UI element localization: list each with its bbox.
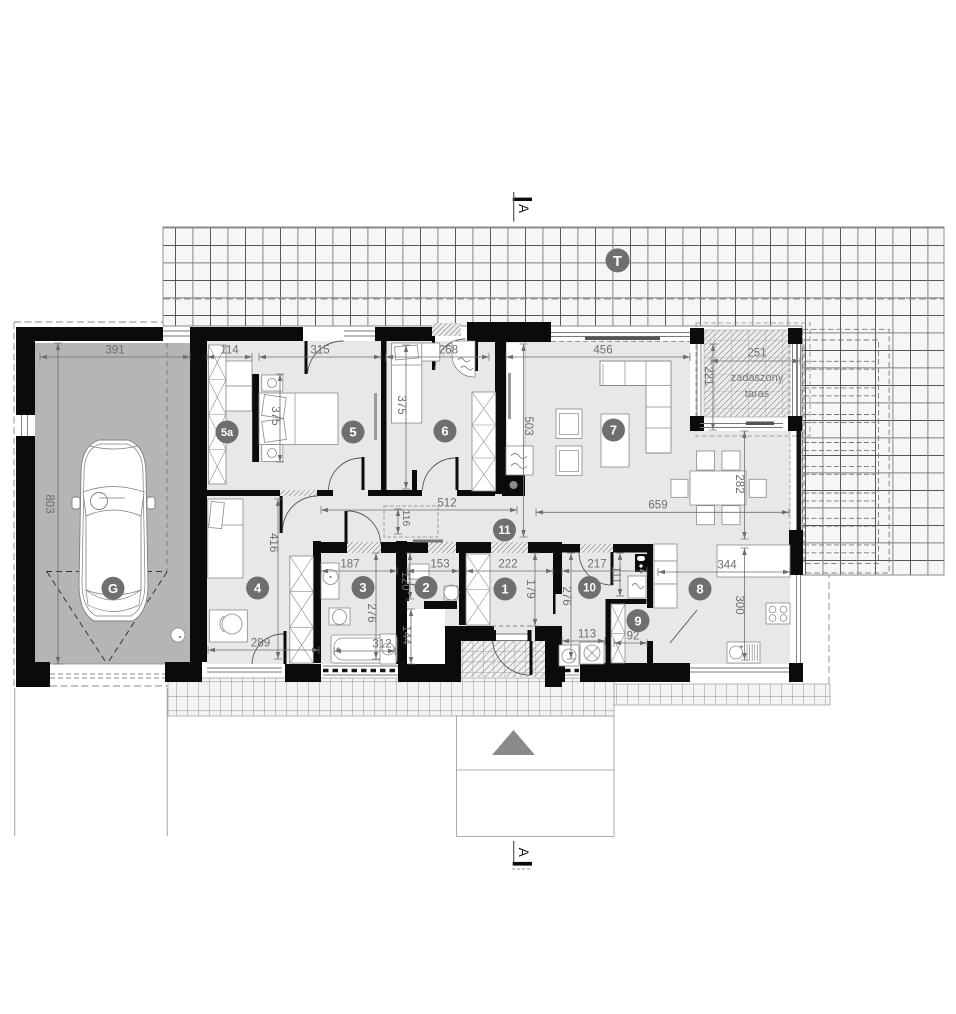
svg-text:zadaszony: zadaszony	[731, 372, 784, 384]
svg-text:9: 9	[634, 613, 641, 628]
svg-text:120: 120	[399, 571, 411, 590]
svg-text:144: 144	[400, 625, 412, 645]
svg-text:5a: 5a	[221, 427, 234, 439]
svg-text:222: 222	[498, 559, 517, 571]
svg-text:5: 5	[349, 425, 356, 440]
svg-text:512: 512	[437, 498, 456, 510]
svg-text:3: 3	[359, 580, 366, 595]
svg-text:276: 276	[365, 603, 377, 622]
svg-text:10: 10	[583, 583, 596, 595]
svg-text:391: 391	[105, 345, 124, 357]
svg-text:416: 416	[267, 533, 279, 552]
svg-text:375: 375	[269, 406, 281, 425]
svg-text:7: 7	[610, 423, 617, 438]
svg-text:6: 6	[441, 424, 448, 439]
svg-text:187: 187	[340, 559, 359, 571]
svg-text:282: 282	[733, 474, 745, 493]
svg-text:276: 276	[560, 586, 572, 605]
svg-text:456: 456	[593, 345, 612, 357]
svg-text:11: 11	[498, 525, 511, 537]
svg-text:A: A	[516, 848, 531, 857]
svg-text:503: 503	[522, 416, 534, 435]
svg-text:1: 1	[501, 582, 508, 597]
svg-text:179: 179	[524, 579, 536, 598]
svg-text:113: 113	[578, 629, 596, 641]
svg-text:312: 312	[372, 639, 391, 651]
svg-text:375: 375	[395, 395, 407, 414]
svg-text:114: 114	[220, 345, 239, 357]
svg-text:116: 116	[400, 510, 412, 527]
svg-text:803: 803	[43, 494, 55, 513]
svg-text:taras: taras	[745, 388, 770, 400]
svg-text:268: 268	[439, 345, 458, 357]
svg-text:4: 4	[254, 581, 262, 596]
svg-text:315: 315	[310, 345, 329, 357]
svg-text:251: 251	[747, 348, 766, 360]
svg-text:A: A	[516, 204, 531, 213]
svg-text:8: 8	[696, 582, 703, 597]
svg-text:111: 111	[610, 566, 622, 583]
svg-text:659: 659	[648, 500, 667, 512]
svg-text:92: 92	[627, 631, 640, 643]
svg-text:289: 289	[251, 638, 270, 650]
svg-text:153: 153	[430, 559, 449, 571]
svg-text:344: 344	[717, 560, 737, 572]
svg-text:300: 300	[733, 595, 745, 614]
svg-text:217: 217	[587, 559, 606, 571]
svg-text:221: 221	[702, 366, 714, 385]
svg-text:2: 2	[422, 580, 429, 595]
svg-text:T: T	[613, 253, 622, 270]
svg-text:G: G	[108, 581, 118, 596]
